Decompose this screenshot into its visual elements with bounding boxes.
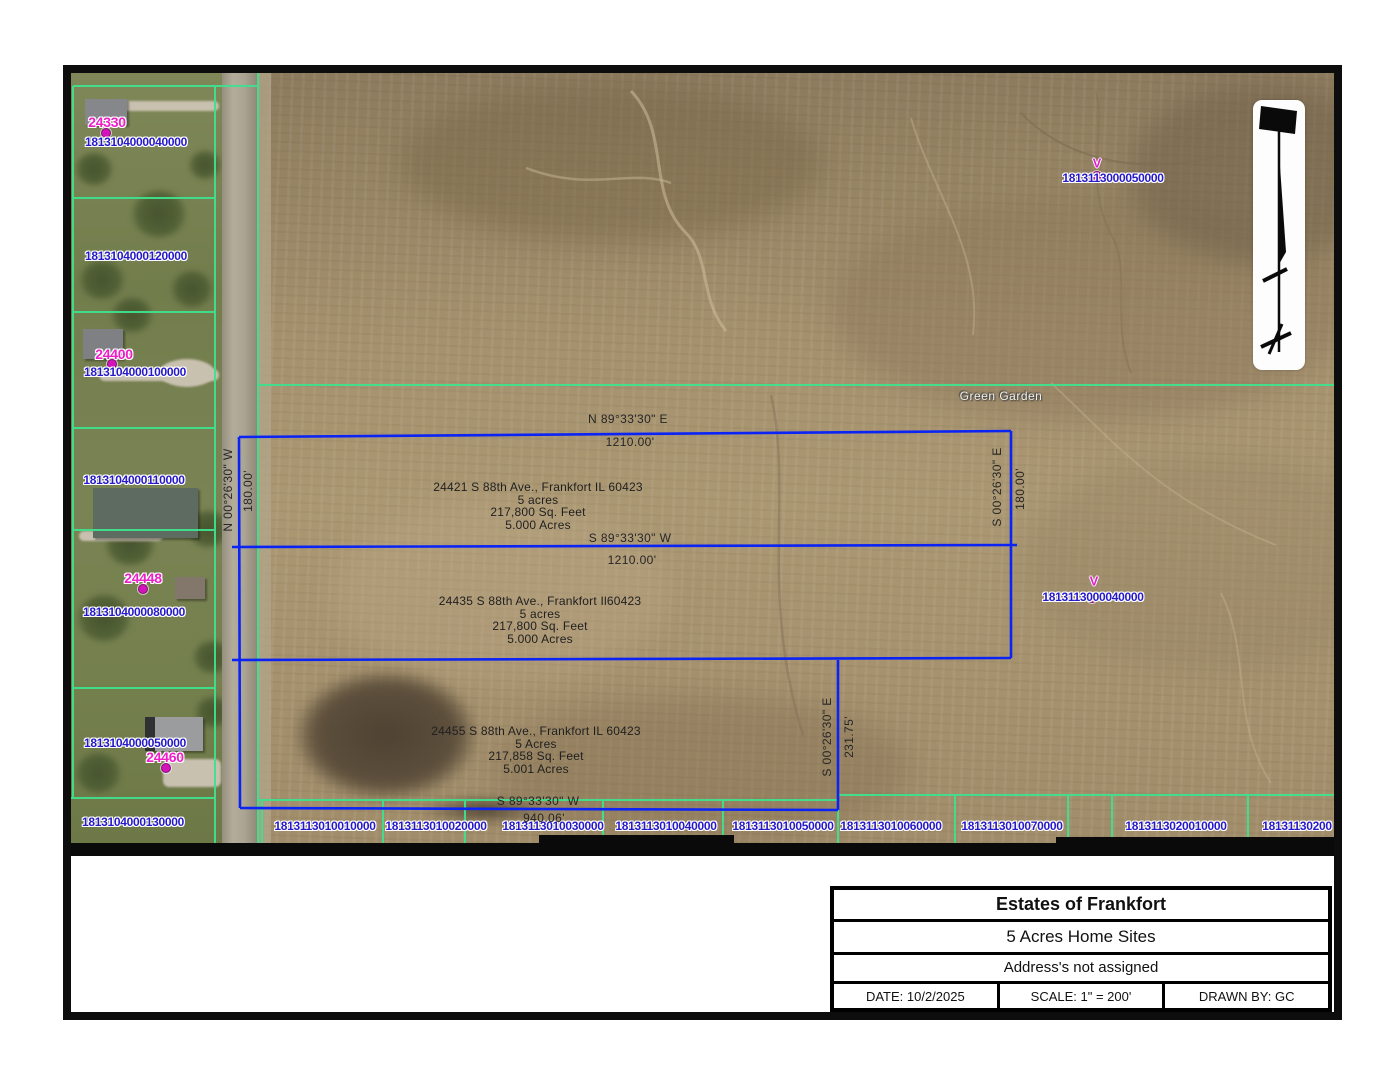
- distance-label: 940.06': [523, 811, 565, 825]
- road-name-label: Green Garden: [960, 389, 1043, 403]
- imagery-void-step: [1056, 837, 1334, 856]
- parcel-linework: [71, 73, 1334, 856]
- parcel-pin: 1813113000050000: [1062, 171, 1163, 185]
- parcel-pin: 1813104000100000: [84, 365, 186, 379]
- distance-label: 1210.00': [606, 435, 655, 449]
- lot-sqft: 217,800 Sq. Feet: [390, 620, 690, 633]
- address-point: [138, 584, 148, 594]
- parcel-pin: 18131130200: [1262, 819, 1331, 833]
- bearing-label: S 00°26'30" E: [990, 447, 1004, 526]
- title-block-footer: DATE: 10/2/2025 SCALE: 1" = 200' DRAWN B…: [834, 984, 1328, 1008]
- parcel-pin: 1813104000040000: [85, 135, 187, 149]
- parcel-pin: 1813104000080000: [83, 605, 185, 619]
- parcel-pin: 1813113020010000: [1125, 819, 1226, 833]
- aerial-map: 24330 1813104000040000 1813104000120000 …: [71, 73, 1334, 856]
- parcel-pin: 1813113010050000: [732, 819, 833, 833]
- parcel-pin: 1813104000110000: [83, 473, 184, 487]
- lot-sqft: 217,800 Sq. Feet: [388, 506, 688, 519]
- parcel-pin: 1813113000040000: [1042, 590, 1143, 604]
- parcel-pin: 1813113010020000: [385, 819, 486, 833]
- lot-address: 24421 S 88th Ave., Frankfort IL 60423: [388, 481, 688, 494]
- plat-subtitle: 5 Acres Home Sites: [834, 922, 1328, 954]
- date-field: DATE: 10/2/2025: [834, 984, 1000, 1008]
- lot-address: 24455 S 88th Ave., Frankfort IL 60423: [386, 725, 686, 738]
- distance-label: 180.00': [241, 470, 255, 512]
- bearing-label: N 89°33'30" E: [588, 412, 668, 426]
- north-arrow-icon: [1253, 100, 1305, 370]
- address-note: Address's not assigned: [834, 955, 1328, 985]
- north-arrow: [1253, 100, 1305, 370]
- parcel-pin: 1813113010060000: [840, 819, 941, 833]
- address-point: [161, 763, 171, 773]
- parcel-pin: 1813104000050000: [84, 736, 186, 750]
- plat-title: Estates of Frankfort: [834, 890, 1328, 922]
- lot-description-1: 24421 S 88th Ave., Frankfort IL 60423 5 …: [388, 481, 688, 531]
- distance-label: 180.00': [1013, 468, 1027, 510]
- green-parcel-lines: [71, 73, 1334, 843]
- lot-sqft: 217,858 Sq. Feet: [386, 750, 686, 763]
- parcel-pin: 1813113010010000: [274, 819, 375, 833]
- scale-field: SCALE: 1" = 200': [1000, 984, 1166, 1008]
- parcel-pin: 1813104000120000: [85, 249, 187, 263]
- lot-acres: 5.000 Acres: [388, 519, 688, 532]
- lot-description-3: 24455 S 88th Ave., Frankfort IL 60423 5 …: [386, 725, 686, 775]
- imagery-void-step: [539, 835, 734, 856]
- distance-label: 1210.00': [608, 553, 657, 567]
- drawn-by-field: DRAWN BY: GC: [1165, 984, 1328, 1008]
- title-block: Estates of Frankfort 5 Acres Home Sites …: [830, 886, 1332, 1012]
- lot-description-2: 24435 S 88th Ave., Frankfort Il60423 5 a…: [390, 595, 690, 645]
- distance-label: 231.75': [842, 716, 856, 758]
- lot-acres: 5.000 Acres: [390, 633, 690, 646]
- v-marker: V: [1093, 156, 1102, 171]
- lot-acres: 5.001 Acres: [386, 763, 686, 776]
- bearing-label: S 00°26'30" E: [820, 697, 834, 776]
- parcel-pin: 1813113010040000: [615, 819, 716, 833]
- lot-address: 24435 S 88th Ave., Frankfort Il60423: [390, 595, 690, 608]
- bearing-label: N 00°26'30" W: [221, 448, 235, 531]
- plat-map-page: 24330 1813104000040000 1813104000120000 …: [0, 0, 1398, 1080]
- bearing-label: S 89°33'30" W: [497, 794, 580, 808]
- v-marker: V: [1090, 574, 1099, 589]
- parcel-pin: 1813113010070000: [961, 819, 1062, 833]
- parcel-pin: 1813104000130000: [82, 815, 184, 829]
- bearing-label: S 89°33'30" W: [589, 531, 672, 545]
